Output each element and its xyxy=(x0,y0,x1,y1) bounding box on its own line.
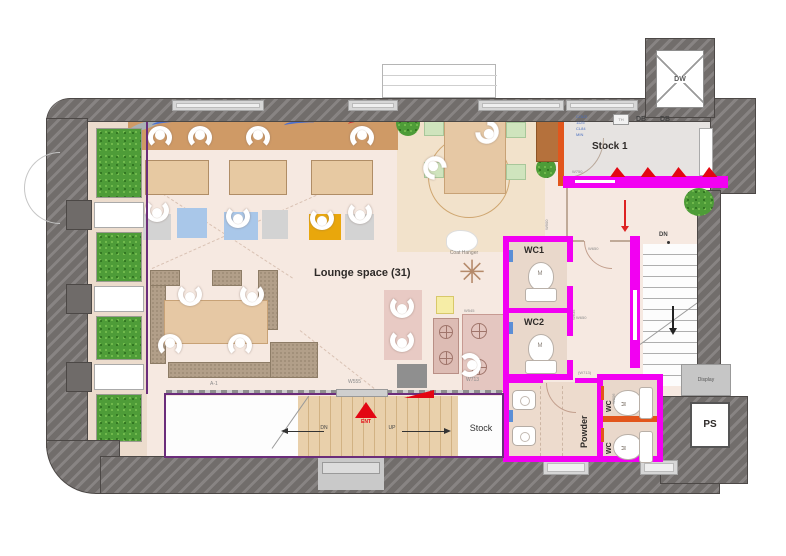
styling-desk xyxy=(311,160,373,195)
door-width-label: (W713) xyxy=(578,371,591,375)
sliding-door-slit xyxy=(575,180,615,183)
basin-symbol xyxy=(439,351,453,365)
salon-chair xyxy=(188,126,212,152)
bench xyxy=(94,364,144,390)
entry-door xyxy=(322,462,380,474)
magenta-wall xyxy=(503,308,573,313)
pillar xyxy=(66,284,92,314)
planter xyxy=(96,232,142,282)
window xyxy=(172,100,264,111)
toilet-m-label: M xyxy=(525,343,555,349)
grab-bar xyxy=(509,322,513,334)
door-swing-arc xyxy=(24,152,60,188)
wall-slit xyxy=(633,290,637,340)
toilet-tank xyxy=(639,387,653,419)
toilet: M xyxy=(525,262,555,302)
powder-dash-line xyxy=(540,386,541,456)
sofa-segment xyxy=(212,270,242,286)
bench xyxy=(94,286,144,312)
compass-star-icon: ✳ xyxy=(452,256,492,296)
door-swing-arc xyxy=(24,188,60,224)
th-label: TH xyxy=(618,118,623,122)
display-label: Display xyxy=(698,378,714,383)
shampoo-chair xyxy=(455,353,481,377)
toilet-tank xyxy=(525,288,557,302)
dimension-label: W555 xyxy=(348,380,361,385)
toilet: M xyxy=(613,433,653,463)
window xyxy=(543,460,589,475)
planter xyxy=(96,128,142,198)
floor-mat xyxy=(262,210,288,239)
dimension-label: W713 xyxy=(466,378,479,383)
planter xyxy=(96,316,142,360)
escape-arrow-stem xyxy=(624,200,626,226)
floor-mat xyxy=(177,208,207,238)
stool xyxy=(436,296,454,314)
dn-dot xyxy=(667,241,670,244)
salon-chair xyxy=(348,198,372,224)
grab-bar xyxy=(509,250,513,262)
salon-chair xyxy=(148,126,172,152)
partition-line xyxy=(146,112,148,394)
armchair xyxy=(240,280,264,306)
salon-chair xyxy=(145,196,169,222)
th-box: TH xyxy=(613,114,629,125)
ps-label: PS xyxy=(703,420,716,430)
orange-door-leaf xyxy=(601,386,604,400)
grab-bar xyxy=(509,410,513,422)
magenta-wall xyxy=(597,374,663,380)
window xyxy=(566,100,638,111)
dw-label: DW xyxy=(673,76,687,83)
armchair xyxy=(228,334,252,360)
equipment-note: COLD 1125 CL84 MIN xyxy=(576,114,587,138)
toilet-m-label: M xyxy=(622,433,628,463)
a1-label: A-1 xyxy=(210,382,218,387)
awning-outline xyxy=(382,64,496,98)
window xyxy=(478,100,564,111)
magenta-wall xyxy=(503,236,573,242)
up-arrow-line xyxy=(402,431,444,432)
up-arrow-head xyxy=(444,428,451,434)
toilet-m-label: M xyxy=(622,389,628,419)
toilet: M xyxy=(525,334,555,374)
dn-stairs-label: DN xyxy=(659,232,668,238)
door-width-label: W650 xyxy=(576,316,586,320)
ps-box: PS xyxy=(690,402,730,448)
stairs-arrow-head xyxy=(669,328,677,335)
dining-cushion xyxy=(506,122,526,138)
plant xyxy=(684,188,714,216)
orange-wall-strip xyxy=(558,112,564,186)
toilet-tank xyxy=(525,360,557,374)
display-box: Display xyxy=(681,364,731,396)
wc1-label: WC1 xyxy=(524,246,544,255)
styling-desk xyxy=(145,160,209,195)
wc2-door-gap xyxy=(567,336,573,360)
wall-line xyxy=(566,188,568,240)
styling-desk xyxy=(229,160,287,195)
magenta-wall xyxy=(509,378,543,383)
toilet-m-label: M xyxy=(525,271,555,277)
db-label: DB xyxy=(660,116,670,123)
salon-chair xyxy=(226,202,250,228)
stock-label: Stock xyxy=(455,424,507,433)
magenta-wall xyxy=(657,374,663,462)
basin-symbol xyxy=(471,323,487,339)
door-width-label: W750 xyxy=(572,170,582,174)
db-label: DB xyxy=(636,116,646,123)
dn-arrow-head xyxy=(281,428,288,434)
sofa-segment xyxy=(168,362,272,378)
toilet-tank xyxy=(639,431,653,463)
up-label: UP xyxy=(384,426,400,431)
armchair xyxy=(178,280,202,306)
salon-chair xyxy=(350,126,374,152)
floor-plan: W900 Lounge space (31) W545 Coat Hanger … xyxy=(0,0,786,556)
shampoo-label: W545 xyxy=(464,309,474,313)
ent-label: ENT xyxy=(351,420,381,425)
awning-line xyxy=(383,85,497,86)
dimension-label: W806 xyxy=(612,384,616,404)
orange-door-leaf xyxy=(601,428,604,442)
wc2-label: WC2 xyxy=(524,318,544,327)
wc-label: WC xyxy=(606,430,613,454)
salon-chair xyxy=(310,204,334,230)
bench xyxy=(94,202,144,228)
sofa-segment xyxy=(150,270,180,286)
dining-cushion xyxy=(424,120,444,136)
shampoo-chair xyxy=(390,292,414,318)
entry-strip-outline xyxy=(164,393,504,458)
dn-arrow-line xyxy=(288,431,324,432)
planter xyxy=(96,394,142,442)
dining-cushion xyxy=(506,164,526,180)
window xyxy=(348,100,398,111)
pillar xyxy=(66,362,92,392)
pillar xyxy=(66,200,92,230)
salon-chair xyxy=(246,126,270,152)
escape-arrow-head xyxy=(621,226,629,232)
stairs-arrow-stem xyxy=(672,306,674,328)
powder-label: Powder xyxy=(580,392,589,448)
awning-line xyxy=(383,75,497,76)
stock1-shelf xyxy=(699,128,713,176)
sink xyxy=(512,426,536,446)
toilet: M xyxy=(613,389,653,419)
door-width-label: W650 xyxy=(588,247,598,251)
equipment-block xyxy=(397,364,427,388)
sink xyxy=(512,390,536,410)
sliding-door xyxy=(336,389,388,397)
coat-hanger-shape xyxy=(446,230,478,252)
shampoo-chair xyxy=(390,326,414,352)
armchair xyxy=(158,334,182,360)
door-width-label: W900 xyxy=(545,202,549,230)
dumbwaiter: DW xyxy=(656,50,704,108)
lounge-label: Lounge space (31) xyxy=(314,268,454,279)
wc1-door-gap xyxy=(567,262,573,286)
ent-triangle xyxy=(355,402,377,418)
sofa-segment xyxy=(270,342,318,378)
basin-symbol xyxy=(439,325,453,339)
